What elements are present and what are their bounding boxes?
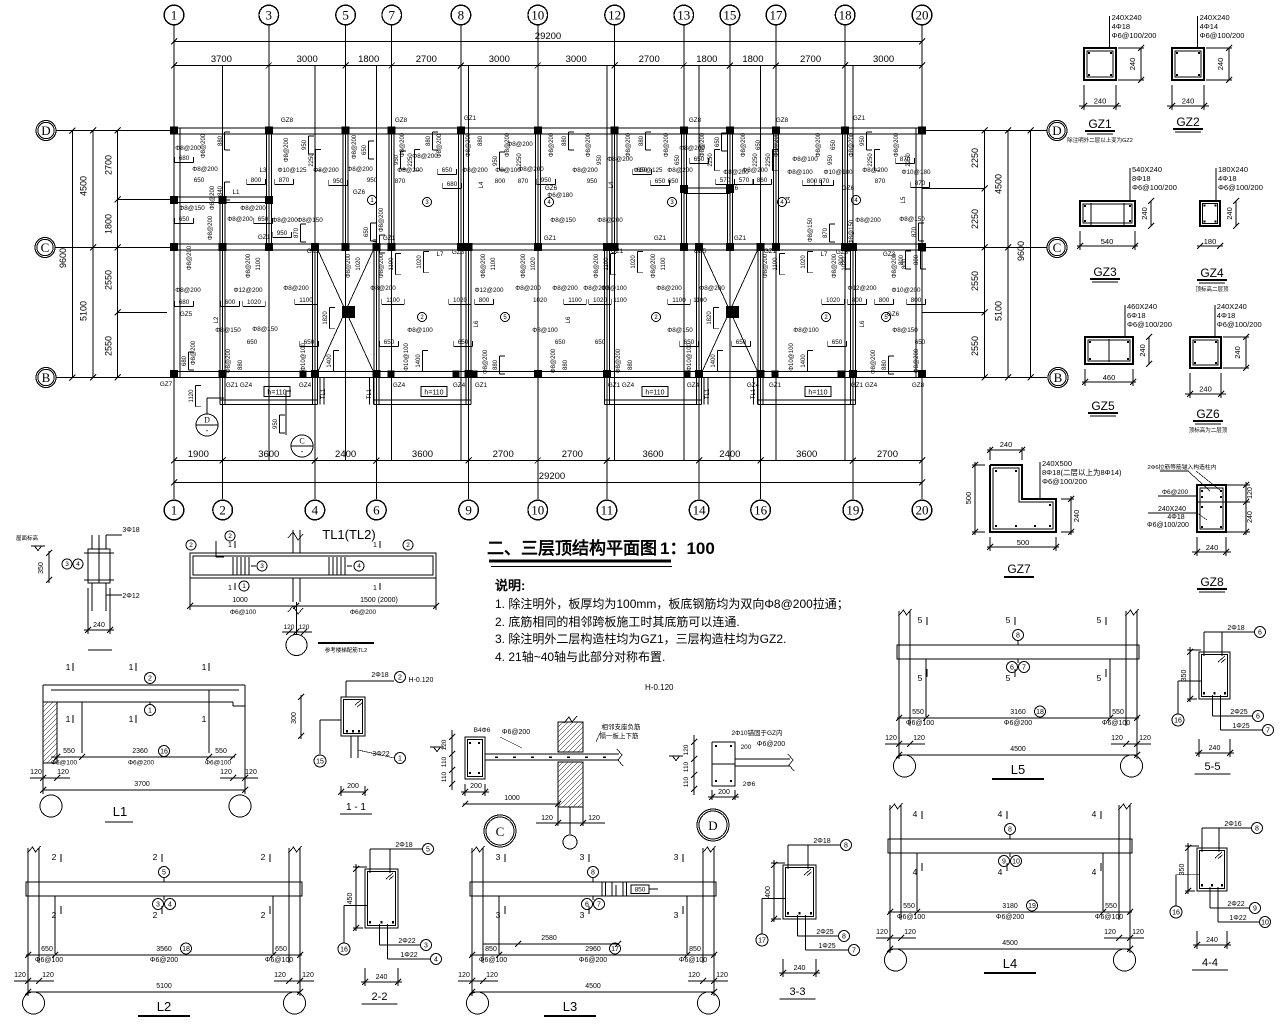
svg-text:650: 650 xyxy=(179,216,190,223)
svg-text:Φ8@200: Φ8@200 xyxy=(583,285,609,292)
svg-text:Φ8@200: Φ8@200 xyxy=(699,285,725,292)
svg-text:h=110: h=110 xyxy=(424,389,443,396)
svg-text:650: 650 xyxy=(275,946,287,953)
svg-text:Φ8@100: Φ8@100 xyxy=(495,167,521,174)
svg-text:3560: 3560 xyxy=(156,946,172,953)
svg-text:120: 120 xyxy=(245,769,257,776)
svg-text:Φ6@100/200: Φ6@100/200 xyxy=(1147,522,1189,529)
svg-text:L3: L3 xyxy=(563,999,577,1014)
svg-text:2580: 2580 xyxy=(541,935,557,942)
svg-text:C: C xyxy=(41,240,50,255)
svg-text:C: C xyxy=(299,437,304,446)
svg-text:1020: 1020 xyxy=(417,255,423,269)
svg-text:1Φ25: 1Φ25 xyxy=(1232,723,1249,730)
svg-text:Φ8@200: Φ8@200 xyxy=(626,132,632,157)
svg-text:h=110: h=110 xyxy=(808,389,827,396)
svg-text:Φ8@200: Φ8@200 xyxy=(597,217,623,224)
svg-text:8: 8 xyxy=(1016,632,1020,639)
svg-text:Φ8@200: Φ8@200 xyxy=(284,137,290,162)
svg-text:20: 20 xyxy=(916,8,929,23)
svg-text:120: 120 xyxy=(284,624,295,631)
svg-text:8: 8 xyxy=(1008,826,1012,833)
svg-text:4: 4 xyxy=(1092,867,1097,877)
svg-text:650: 650 xyxy=(362,144,368,155)
svg-text:Φ12@200: Φ12@200 xyxy=(234,287,263,294)
svg-text:GZ7: GZ7 xyxy=(1007,562,1031,576)
svg-text:1800: 1800 xyxy=(104,214,114,234)
svg-text:120: 120 xyxy=(541,815,553,822)
svg-text:Φ8@200: Φ8@200 xyxy=(521,253,527,278)
svg-text:120: 120 xyxy=(1247,487,1254,499)
svg-text:GZ1: GZ1 xyxy=(1088,117,1112,131)
svg-text:9600: 9600 xyxy=(58,248,68,268)
svg-text:Φ8@200: Φ8@200 xyxy=(651,253,657,278)
svg-text:300: 300 xyxy=(291,712,298,724)
svg-text:L2: L2 xyxy=(214,316,220,323)
svg-text:L4: L4 xyxy=(1003,956,1017,971)
svg-text:550: 550 xyxy=(1112,709,1124,716)
svg-text:Φ8@150: Φ8@150 xyxy=(808,217,814,242)
svg-text:1: 1 xyxy=(171,8,178,23)
svg-text:3600: 3600 xyxy=(642,449,663,460)
svg-text:Φ8@200: Φ8@200 xyxy=(175,145,201,152)
svg-text:240X500: 240X500 xyxy=(1042,459,1072,468)
svg-text:1: 1 xyxy=(373,542,377,549)
svg-text:3: 3 xyxy=(496,852,501,862)
svg-text:7: 7 xyxy=(1266,727,1270,734)
svg-text:3: 3 xyxy=(580,910,585,920)
svg-text:Φ8@200: Φ8@200 xyxy=(192,166,218,173)
svg-text:1400: 1400 xyxy=(327,354,333,368)
svg-text:1020: 1020 xyxy=(801,255,807,269)
svg-text:L4: L4 xyxy=(479,181,485,188)
svg-text:4: 4 xyxy=(1092,809,1097,819)
svg-text:120: 120 xyxy=(913,735,925,742)
svg-text:800: 800 xyxy=(807,178,818,185)
svg-text:1: 1 xyxy=(129,662,134,672)
svg-text:880: 880 xyxy=(478,135,484,146)
svg-text:650: 650 xyxy=(595,339,606,346)
svg-text:Φ8@200: Φ8@200 xyxy=(515,285,541,292)
svg-text:Φ8@150: Φ8@150 xyxy=(550,217,576,224)
svg-text:Φ12@200: Φ12@200 xyxy=(848,285,877,292)
svg-text:240: 240 xyxy=(1206,937,1218,944)
svg-text:Φ8@200: Φ8@200 xyxy=(667,167,693,174)
svg-text:400: 400 xyxy=(765,886,772,898)
svg-text:H-0.120: H-0.120 xyxy=(409,677,434,684)
svg-text:240: 240 xyxy=(794,965,806,972)
svg-text:1: 1 xyxy=(398,755,402,762)
svg-text:650: 650 xyxy=(555,339,566,346)
svg-text:5100: 5100 xyxy=(994,301,1004,321)
svg-text:9600: 9600 xyxy=(1016,241,1026,261)
svg-text:1900: 1900 xyxy=(188,449,209,460)
svg-text:2700: 2700 xyxy=(800,54,821,65)
svg-text:200: 200 xyxy=(741,744,752,751)
svg-text:2: 2 xyxy=(261,910,266,920)
svg-text:240X240: 240X240 xyxy=(1200,13,1230,22)
svg-text:GZ8: GZ8 xyxy=(776,117,789,124)
svg-text:500: 500 xyxy=(1017,538,1030,547)
svg-text:8Φ18(二层以上为8Φ14): 8Φ18(二层以上为8Φ14) xyxy=(1042,467,1122,477)
svg-text:800: 800 xyxy=(495,178,506,185)
svg-text:Φ8@200: Φ8@200 xyxy=(379,207,385,232)
svg-text:L6: L6 xyxy=(566,316,572,323)
svg-text:5: 5 xyxy=(162,869,166,876)
svg-text:Φ8@200: Φ8@200 xyxy=(742,167,768,174)
svg-text:120: 120 xyxy=(688,972,700,979)
svg-text:870: 870 xyxy=(294,227,300,238)
svg-text:1020: 1020 xyxy=(631,255,637,269)
svg-text:650: 650 xyxy=(637,167,648,174)
svg-text:Φ10@200: Φ10@200 xyxy=(892,287,921,294)
svg-text:650: 650 xyxy=(831,139,837,150)
svg-text:110: 110 xyxy=(683,776,690,787)
svg-text:1400: 1400 xyxy=(801,354,807,368)
svg-text:GZ6: GZ6 xyxy=(842,185,855,192)
svg-text:3Φ22: 3Φ22 xyxy=(372,751,389,758)
svg-text:GZ1: GZ1 xyxy=(475,382,488,389)
svg-text:4500: 4500 xyxy=(1002,940,1018,947)
svg-text:9: 9 xyxy=(1253,905,1257,912)
svg-text:650: 650 xyxy=(364,226,370,237)
svg-text:1800: 1800 xyxy=(358,54,379,65)
svg-text:GZ1: GZ1 xyxy=(258,234,271,241)
svg-text:Φ8@200: Φ8@200 xyxy=(849,132,855,157)
svg-text:1: 1 xyxy=(66,662,71,672)
svg-text:3: 3 xyxy=(260,563,264,570)
svg-text:4Φ18: 4Φ18 xyxy=(1217,311,1236,320)
svg-text:2700: 2700 xyxy=(877,449,898,460)
svg-text:5-5: 5-5 xyxy=(1205,761,1221,773)
svg-text:4500: 4500 xyxy=(585,983,601,990)
svg-text:GZ6: GZ6 xyxy=(887,311,900,318)
svg-text:5100: 5100 xyxy=(79,301,89,321)
svg-text:L5: L5 xyxy=(901,196,907,203)
svg-text:3180: 3180 xyxy=(1002,903,1018,910)
svg-text:4: 4 xyxy=(312,503,319,518)
svg-text:240: 240 xyxy=(93,622,105,629)
svg-text:1020: 1020 xyxy=(247,299,262,306)
svg-text:Φ8@200: Φ8@200 xyxy=(175,287,201,294)
svg-text:2Φ18: 2Φ18 xyxy=(1227,625,1244,632)
svg-text:L6: L6 xyxy=(860,320,866,327)
svg-text:GZ4: GZ4 xyxy=(453,382,466,389)
svg-text:1: 1 xyxy=(373,585,377,592)
svg-text:16: 16 xyxy=(160,748,168,755)
svg-text:Φ8@200: Φ8@200 xyxy=(774,132,780,157)
svg-text:GZ7: GZ7 xyxy=(160,381,173,388)
svg-text:800: 800 xyxy=(251,177,262,184)
svg-text:1020: 1020 xyxy=(531,257,537,271)
svg-text:Φ8@200: Φ8@200 xyxy=(462,167,488,174)
svg-text:1: 1 xyxy=(129,714,134,724)
svg-text:680: 680 xyxy=(179,299,190,306)
svg-text:2Φ18: 2Φ18 xyxy=(371,672,388,679)
svg-text:1020: 1020 xyxy=(453,297,468,304)
svg-text:18: 18 xyxy=(182,946,190,953)
svg-text:Φ8@200: Φ8@200 xyxy=(227,216,253,223)
svg-text:Φ8@150: Φ8@150 xyxy=(899,216,925,223)
svg-text:240: 240 xyxy=(1247,511,1254,523)
svg-text:Φ8@150: Φ8@150 xyxy=(849,219,855,244)
svg-text:2Φ25: 2Φ25 xyxy=(1230,709,1247,716)
svg-text:650: 650 xyxy=(442,167,453,174)
svg-text:GZ1: GZ1 xyxy=(654,235,667,242)
svg-text:880: 880 xyxy=(882,359,888,370)
svg-text:1Φ22: 1Φ22 xyxy=(1229,915,1246,922)
svg-text:5: 5 xyxy=(426,846,430,853)
svg-text:240: 240 xyxy=(1206,543,1219,552)
svg-text:4: 4 xyxy=(434,956,438,963)
svg-text:Φ8@200: Φ8@200 xyxy=(832,253,838,278)
svg-text:2700: 2700 xyxy=(416,54,437,65)
svg-text:450: 450 xyxy=(347,893,354,905)
svg-text:GZ8: GZ8 xyxy=(689,117,702,124)
svg-text:4Φ18: 4Φ18 xyxy=(1167,514,1184,521)
svg-text:5: 5 xyxy=(1006,615,1011,625)
svg-text:1100: 1100 xyxy=(773,257,779,271)
svg-text:350: 350 xyxy=(1181,670,1188,682)
svg-text:1100: 1100 xyxy=(613,297,627,304)
svg-text:L7: L7 xyxy=(436,251,444,258)
svg-text:13: 13 xyxy=(677,8,690,23)
svg-text:Φ6@100/200: Φ6@100/200 xyxy=(1042,477,1087,486)
svg-text:6: 6 xyxy=(585,901,589,908)
svg-text:240: 240 xyxy=(1138,344,1147,357)
svg-text:120: 120 xyxy=(14,972,26,979)
svg-text:GZ4: GZ4 xyxy=(393,382,406,389)
svg-text:9: 9 xyxy=(465,503,472,518)
svg-text:3600: 3600 xyxy=(258,449,279,460)
svg-text:L5: L5 xyxy=(1011,762,1025,777)
svg-text:D: D xyxy=(204,416,210,425)
svg-text:6: 6 xyxy=(1010,664,1014,671)
svg-text:2: 2 xyxy=(398,674,402,681)
svg-text:H-0.120: H-0.120 xyxy=(645,683,674,692)
svg-text:Φ8@200: Φ8@200 xyxy=(352,134,358,159)
svg-text:L1: L1 xyxy=(113,804,127,819)
svg-text:4Φ18: 4Φ18 xyxy=(1112,22,1131,31)
svg-text:3000: 3000 xyxy=(566,54,587,65)
svg-text:550: 550 xyxy=(63,748,75,755)
svg-text:Φ8@200: Φ8@200 xyxy=(586,132,592,157)
svg-text:h=110: h=110 xyxy=(645,389,664,396)
svg-text:4: 4 xyxy=(913,809,918,819)
svg-text:5100: 5100 xyxy=(156,983,172,990)
svg-text:Φ6@100: Φ6@100 xyxy=(205,760,232,767)
svg-text:650: 650 xyxy=(756,139,762,150)
svg-text:Φ6@200: Φ6@200 xyxy=(150,957,178,964)
svg-text:8: 8 xyxy=(591,869,595,876)
svg-text:880: 880 xyxy=(562,135,568,146)
svg-text:Φ8@200: Φ8@200 xyxy=(505,132,511,157)
svg-text:120: 120 xyxy=(274,972,286,979)
svg-text:GZ1: GZ1 xyxy=(611,248,624,255)
svg-text:180X240: 180X240 xyxy=(1218,165,1248,174)
svg-text:240: 240 xyxy=(1233,346,1242,359)
svg-text:650: 650 xyxy=(915,339,926,346)
svg-text:Φ6@100: Φ6@100 xyxy=(479,957,507,964)
svg-text:Φ8@200: Φ8@200 xyxy=(187,245,193,270)
svg-text:19: 19 xyxy=(1028,903,1036,910)
svg-text:Φ6@100: Φ6@100 xyxy=(906,720,934,727)
svg-text:650: 650 xyxy=(247,339,258,346)
svg-text:Φ6@100: Φ6@100 xyxy=(679,957,707,964)
svg-text:9: 9 xyxy=(1002,858,1006,865)
svg-text:1: 1 xyxy=(242,583,246,590)
svg-text:6: 6 xyxy=(1258,629,1262,636)
svg-text:Φ6@200: Φ6@200 xyxy=(579,957,607,964)
svg-text:550: 550 xyxy=(1105,903,1117,910)
svg-text:B4Φ6: B4Φ6 xyxy=(474,727,491,734)
svg-text:680: 680 xyxy=(447,181,458,188)
svg-text:Φ8@200: Φ8@200 xyxy=(347,166,373,173)
svg-text:1020: 1020 xyxy=(533,297,548,304)
svg-text:950: 950 xyxy=(273,418,279,429)
svg-text:Φ8@200: Φ8@200 xyxy=(862,167,888,174)
svg-text:880: 880 xyxy=(238,359,244,370)
svg-text:Φ6@200: Φ6@200 xyxy=(128,760,155,767)
svg-text:120: 120 xyxy=(42,972,54,979)
svg-text:1000: 1000 xyxy=(504,795,520,802)
svg-text:18: 18 xyxy=(1036,709,1044,716)
svg-text:2: 2 xyxy=(52,910,57,920)
svg-text:120: 120 xyxy=(57,769,69,776)
svg-text:2: 2 xyxy=(52,852,57,862)
svg-text:120: 120 xyxy=(1111,735,1123,742)
svg-text:850: 850 xyxy=(485,946,497,953)
svg-text:Φ8@200: Φ8@200 xyxy=(816,132,822,157)
svg-text:880: 880 xyxy=(493,359,499,370)
svg-text:Φ6@200: Φ6@200 xyxy=(502,729,530,736)
svg-text:1800: 1800 xyxy=(696,54,717,65)
svg-text:1800: 1800 xyxy=(742,54,763,65)
svg-text:L6: L6 xyxy=(474,320,480,327)
svg-text:10: 10 xyxy=(531,503,544,518)
svg-text:GZ2: GZ2 xyxy=(1176,115,1200,129)
svg-text:2Φ22: 2Φ22 xyxy=(1227,901,1244,908)
svg-text:120: 120 xyxy=(299,624,310,631)
svg-text:Φ8@150: Φ8@150 xyxy=(215,327,241,334)
svg-text:1Φ25: 1Φ25 xyxy=(818,943,835,950)
svg-text:4: 4 xyxy=(357,563,361,570)
svg-text:850: 850 xyxy=(689,946,701,953)
svg-text:GZ4: GZ4 xyxy=(1200,266,1224,280)
svg-text:3: 3 xyxy=(65,561,69,568)
svg-text:GZ6: GZ6 xyxy=(353,189,366,196)
svg-text:110: 110 xyxy=(441,771,448,782)
svg-text:2Φ6拉筋等筋锚入构造柱内: 2Φ6拉筋等筋锚入构造柱内 xyxy=(1147,463,1216,471)
svg-text:Φ8@200: Φ8@200 xyxy=(346,253,352,278)
svg-text:2250: 2250 xyxy=(517,153,523,167)
svg-text:L1: L1 xyxy=(232,189,240,196)
svg-text:200: 200 xyxy=(470,783,482,790)
svg-text:Φ6@200: Φ6@200 xyxy=(996,914,1024,921)
svg-text:Φ10@100: Φ10@100 xyxy=(687,343,693,371)
svg-text:880: 880 xyxy=(639,135,645,146)
svg-text:2: 2 xyxy=(261,852,266,862)
svg-text:1020: 1020 xyxy=(593,297,608,304)
svg-text:3000: 3000 xyxy=(873,54,894,65)
svg-text:3000: 3000 xyxy=(489,54,510,65)
svg-text:GZ1: GZ1 xyxy=(464,115,477,122)
svg-text:2Φ6: 2Φ6 xyxy=(743,781,756,788)
svg-text:550: 550 xyxy=(903,903,915,910)
svg-text:1: 1 xyxy=(202,714,207,724)
svg-text:2550: 2550 xyxy=(104,336,114,356)
svg-text:GZ4: GZ4 xyxy=(747,382,760,389)
svg-text:Φ6@200: Φ6@200 xyxy=(350,609,377,616)
svg-text:3700: 3700 xyxy=(211,54,232,65)
svg-text:1: 1 xyxy=(228,585,232,592)
svg-text:200: 200 xyxy=(347,783,359,790)
svg-text:870: 870 xyxy=(823,227,829,238)
svg-text:120: 120 xyxy=(30,769,42,776)
svg-text:顶标高为二层顶: 顶标高为二层顶 xyxy=(1189,426,1228,434)
svg-text:19: 19 xyxy=(846,503,859,518)
svg-text:350: 350 xyxy=(1179,864,1186,876)
svg-text:540: 540 xyxy=(1101,237,1114,246)
svg-text:Φ6@100: Φ6@100 xyxy=(51,760,78,767)
svg-text:GZ5: GZ5 xyxy=(1091,399,1115,413)
svg-text:Φ8@200: Φ8@200 xyxy=(572,167,598,174)
svg-text:GZ8: GZ8 xyxy=(912,382,925,389)
svg-text:8: 8 xyxy=(844,842,848,849)
svg-text:TL1: TL1 xyxy=(751,388,757,399)
svg-text:12: 12 xyxy=(608,8,621,23)
svg-text:870: 870 xyxy=(395,178,406,185)
svg-text:1: 1 xyxy=(66,714,71,724)
svg-text:Φ8@200: Φ8@200 xyxy=(892,253,898,278)
svg-text:Φ8@200: Φ8@200 xyxy=(412,153,438,160)
svg-text:GZ3: GZ3 xyxy=(452,249,465,256)
svg-text:120: 120 xyxy=(441,739,448,750)
svg-text:240: 240 xyxy=(1072,510,1081,523)
svg-text:2Φ22: 2Φ22 xyxy=(398,938,415,945)
svg-text:120: 120 xyxy=(220,769,232,776)
svg-text:-: - xyxy=(301,447,304,456)
svg-text:二、三层顶结构平面图: 二、三层顶结构平面图 xyxy=(487,538,657,558)
svg-text:1100: 1100 xyxy=(386,297,400,304)
svg-text:GZ6: GZ6 xyxy=(1196,407,1220,421)
svg-text:1. 除注明外，板厚均为100mm，板底钢筋均为双向Φ8@2: 1. 除注明外，板厚均为100mm，板底钢筋均为双向Φ8@200拉通； xyxy=(495,596,849,611)
svg-text:D: D xyxy=(1052,123,1061,138)
svg-text:2550: 2550 xyxy=(970,271,980,291)
svg-text:说明:: 说明: xyxy=(495,578,525,593)
svg-text:GZ5: GZ5 xyxy=(307,248,320,255)
svg-text:GZ1 GZ4: GZ1 GZ4 xyxy=(226,382,253,389)
svg-text:110: 110 xyxy=(683,761,690,772)
svg-text:Φ6@100: Φ6@100 xyxy=(1102,720,1130,727)
svg-text:4: 4 xyxy=(168,901,172,908)
svg-text:8: 8 xyxy=(458,8,465,23)
svg-text:Φ8@200: Φ8@200 xyxy=(437,133,443,158)
svg-text:870: 870 xyxy=(875,178,886,185)
svg-text:6: 6 xyxy=(1256,713,1260,720)
svg-text:29200: 29200 xyxy=(535,31,561,42)
svg-text:Φ8@150: Φ8@150 xyxy=(667,327,693,334)
svg-text:Φ8@150: Φ8@150 xyxy=(179,205,205,212)
svg-text:3: 3 xyxy=(674,910,679,920)
svg-text:120: 120 xyxy=(716,972,728,979)
svg-text:GZ8: GZ8 xyxy=(1200,575,1224,589)
svg-text:800: 800 xyxy=(902,258,908,269)
svg-text:3000: 3000 xyxy=(297,54,318,65)
svg-text:3600: 3600 xyxy=(412,449,433,460)
svg-text:4500: 4500 xyxy=(994,174,1004,194)
svg-text:Φ8@100: Φ8@100 xyxy=(793,327,819,334)
